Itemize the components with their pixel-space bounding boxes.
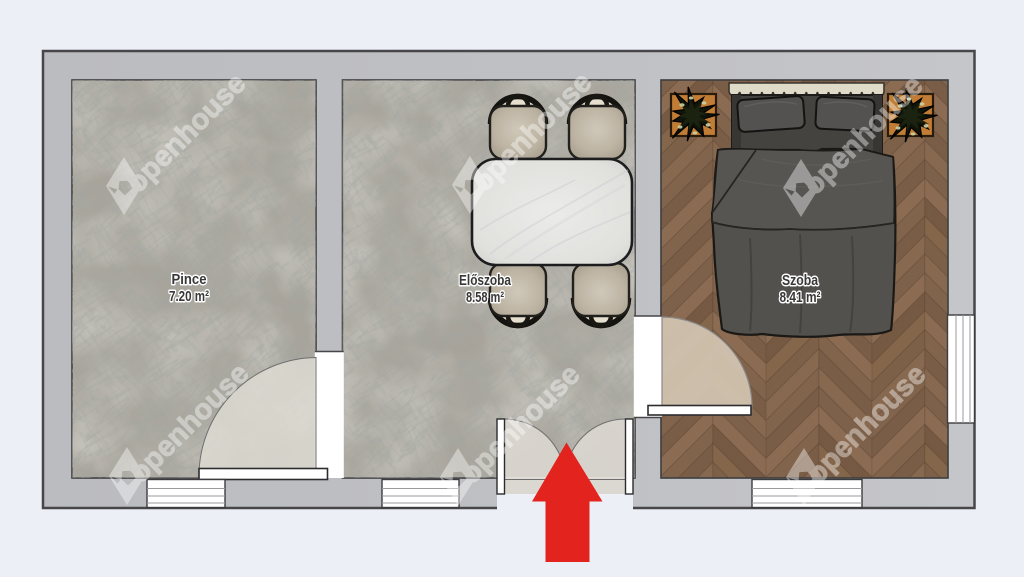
svg-text:Szoba: Szoba xyxy=(782,272,819,289)
svg-text:Pince: Pince xyxy=(172,271,207,288)
svg-text:Előszoba: Előszoba xyxy=(459,272,512,289)
svg-text:8.41 m²: 8.41 m² xyxy=(780,289,821,306)
svg-text:8.58 m²: 8.58 m² xyxy=(466,289,504,306)
svg-text:7.20 m²: 7.20 m² xyxy=(169,288,209,305)
